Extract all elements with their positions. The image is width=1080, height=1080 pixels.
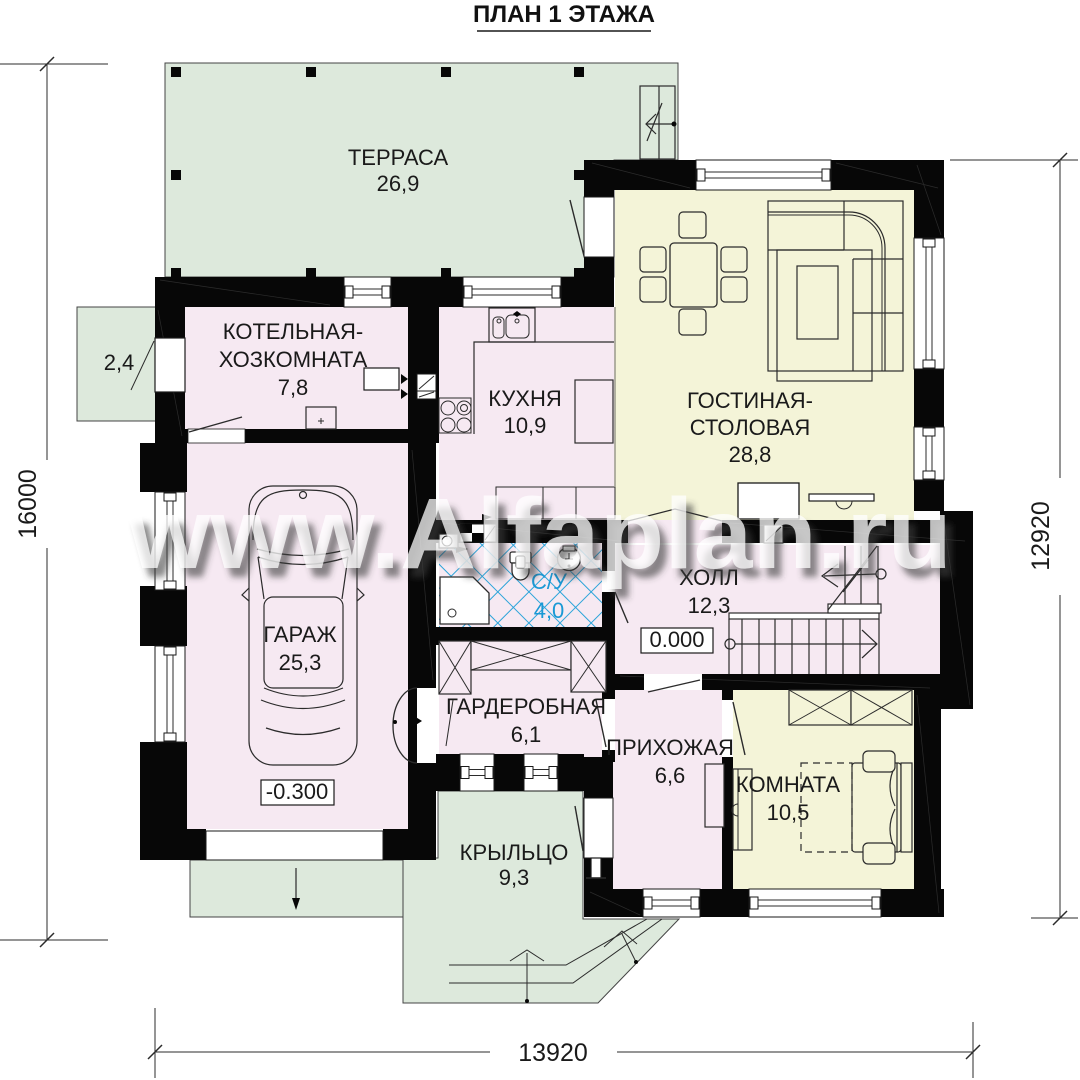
svg-text:-0.300: -0.300 bbox=[266, 779, 328, 804]
svg-text:13920: 13920 bbox=[518, 1039, 588, 1067]
svg-text:16000: 16000 bbox=[14, 469, 42, 539]
svg-text:ПЛАН 1 ЭТАЖА: ПЛАН 1 ЭТАЖА bbox=[473, 1, 655, 28]
svg-text:12920: 12920 bbox=[1027, 501, 1055, 571]
svg-text:0.000: 0.000 bbox=[649, 627, 704, 652]
svg-text:2,4: 2,4 bbox=[104, 350, 135, 375]
svg-text:www.Alfaplan.ru: www.Alfaplan.ru bbox=[127, 478, 952, 590]
